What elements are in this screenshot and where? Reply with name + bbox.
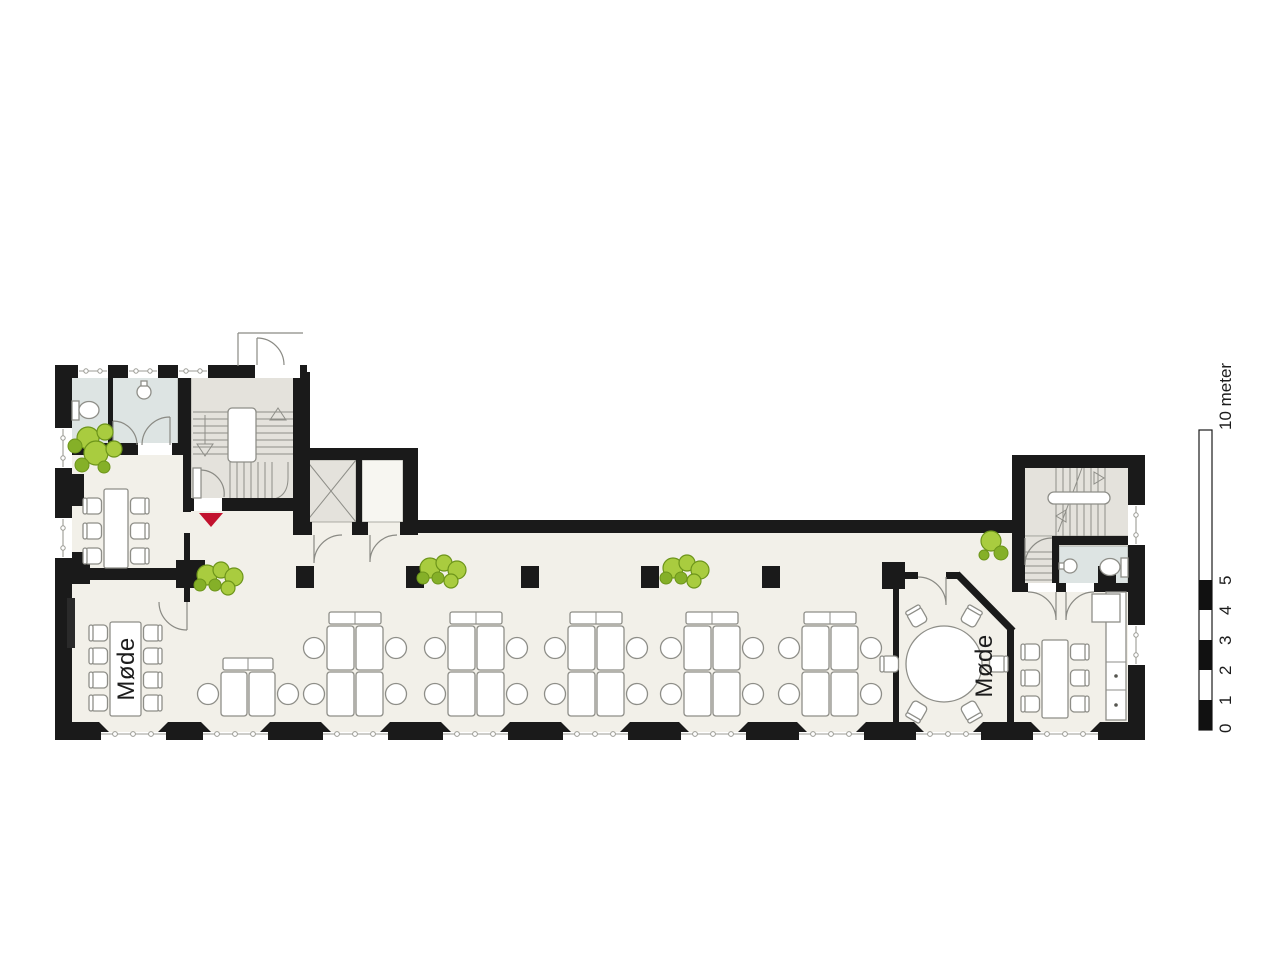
scale-tick-label: 0 — [1216, 724, 1235, 733]
floor-plan-page: Møde Møde — [0, 0, 1280, 960]
radiator — [67, 598, 75, 648]
kitchen-table-group — [1021, 640, 1089, 718]
sink-tap — [1059, 563, 1064, 569]
meeting-room-left-label: Møde — [113, 637, 140, 700]
lounge-table — [104, 489, 128, 568]
column — [882, 562, 905, 589]
scale-tick-label: 3 — [1216, 636, 1235, 645]
toilet-bowl — [79, 402, 99, 419]
column — [641, 566, 659, 588]
wc-door-opening — [138, 443, 172, 455]
door-arc — [257, 338, 284, 365]
scale-unit-label: 10 meter — [1216, 363, 1235, 430]
toilet-tank — [72, 401, 79, 420]
kitchen-table — [1042, 640, 1068, 718]
scale-tick-label: 4 — [1216, 606, 1235, 615]
scale-tick-label: 1 — [1216, 696, 1235, 705]
column — [762, 566, 780, 588]
scale-tick-label: 2 — [1216, 666, 1235, 675]
stair-door-opening — [194, 498, 222, 511]
sink — [137, 385, 151, 399]
sink — [1063, 559, 1077, 573]
kitchen-sink — [1092, 594, 1120, 622]
stair-core — [228, 408, 256, 462]
entry-door-opening — [255, 365, 300, 378]
lounge-table-group — [83, 489, 149, 568]
sink-tap — [141, 381, 147, 386]
floor-plan: Møde Møde — [0, 0, 1280, 960]
scale-bar: 0 1 2 3 4 5 10 meter — [1199, 363, 1235, 733]
stair-handrail — [1048, 492, 1110, 504]
toilet-tank — [1121, 558, 1128, 577]
meeting-room-right-label: Møde — [971, 634, 998, 697]
column — [296, 566, 314, 588]
column — [521, 566, 539, 588]
closet-room — [362, 460, 403, 522]
toilet-bowl — [1100, 559, 1120, 576]
scale-tick-label: 5 — [1216, 576, 1235, 585]
porch-outline — [238, 333, 303, 366]
